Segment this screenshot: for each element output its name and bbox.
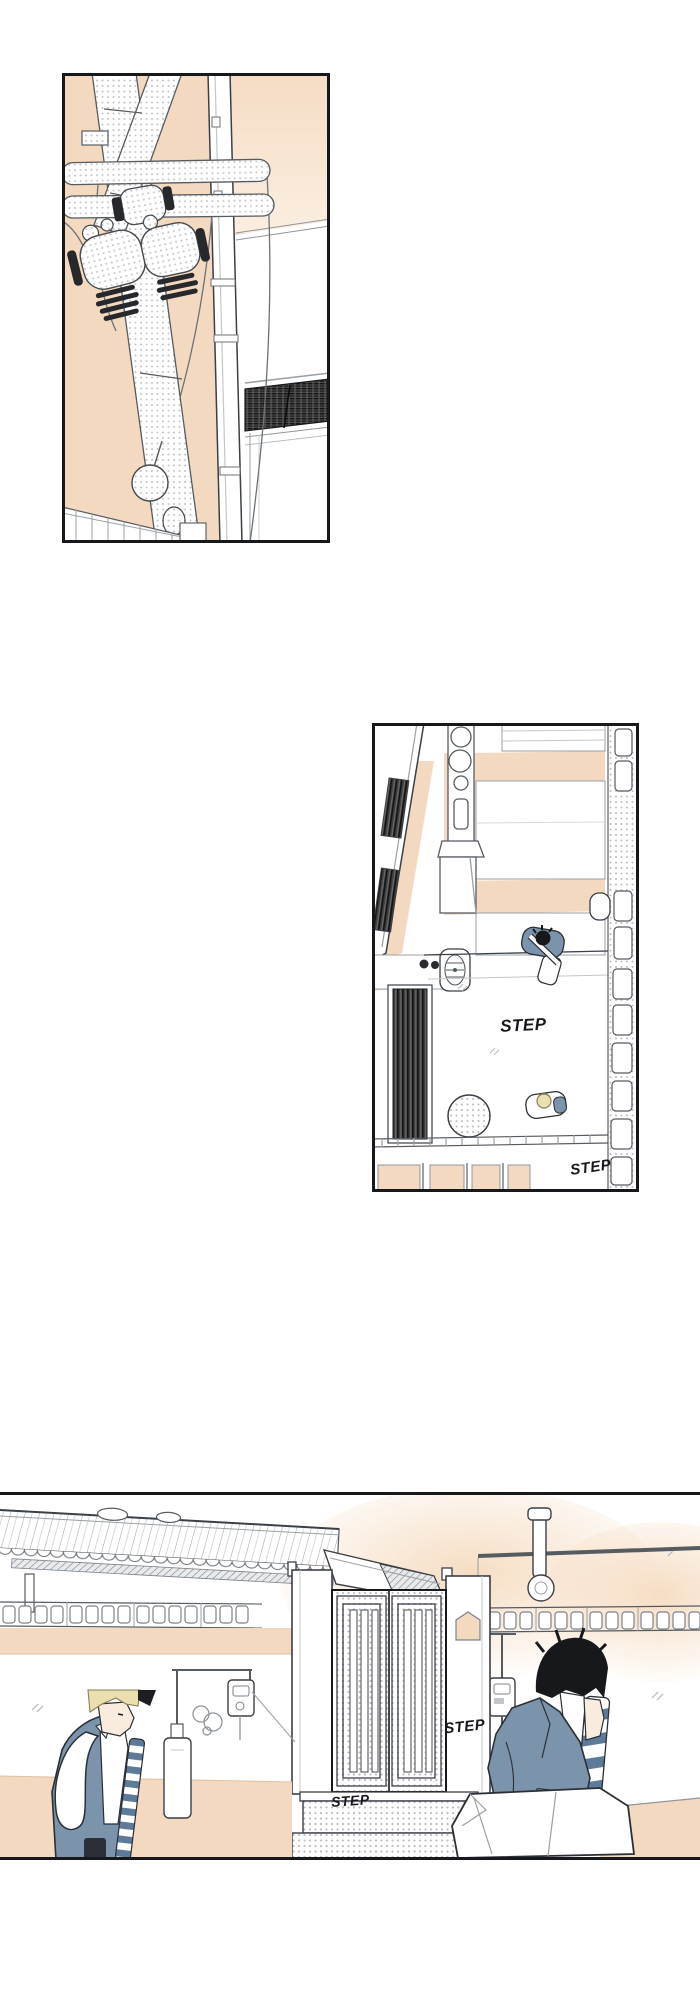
- gate-right-post: [442, 1568, 490, 1794]
- panel-border-top: [0, 1492, 700, 1495]
- crossarm-top: [62, 159, 270, 185]
- sfx-step-top: STEP: [500, 1014, 547, 1035]
- panel-courtyard-aerial: STEP: [372, 723, 639, 1192]
- webtoon-page: STEP: [0, 0, 700, 1993]
- panel-street-gate: STEP STEP: [0, 1492, 700, 1860]
- round-bush: [448, 1095, 490, 1137]
- panel-utility-pole: [62, 73, 330, 543]
- ground-band-left: [0, 1776, 292, 1860]
- duffel-bag: [452, 1788, 634, 1858]
- gate-left-post: [288, 1562, 332, 1794]
- face: [584, 1698, 604, 1740]
- panel-border-bottom: [0, 1857, 700, 1860]
- eye: [118, 1714, 123, 1715]
- wall-pipe-elbow: [590, 893, 610, 920]
- dark-bag: [84, 1838, 106, 1860]
- sfx-step-base: STEP: [331, 1791, 371, 1810]
- peach-wall-band-left: [0, 1628, 292, 1654]
- gate-doors: [332, 1590, 446, 1792]
